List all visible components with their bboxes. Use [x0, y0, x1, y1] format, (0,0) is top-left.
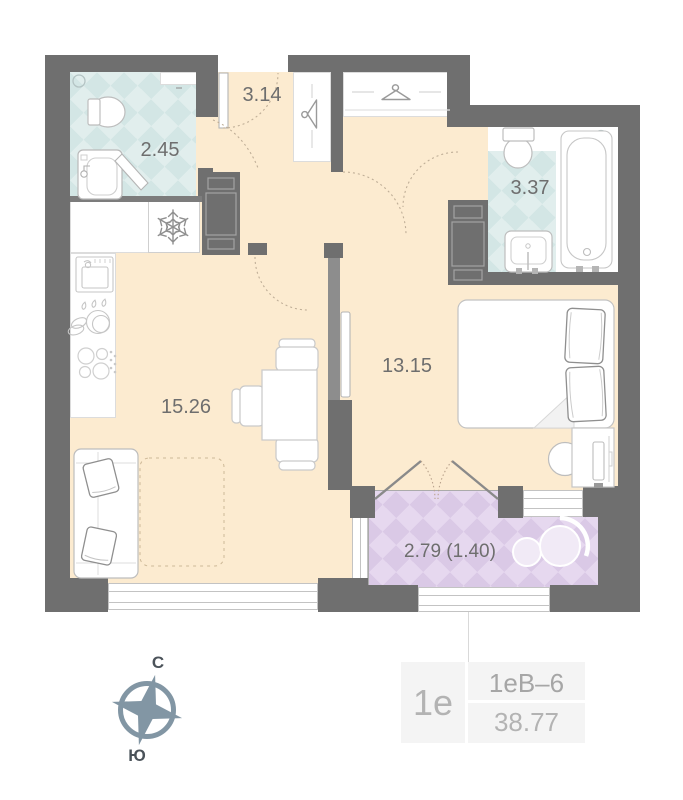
unit-type-cell: 1е	[401, 662, 465, 743]
duct-detail	[206, 178, 484, 280]
toilet-icon	[503, 128, 534, 168]
desk-and-chair	[549, 428, 615, 488]
layout-code-cell: 1еВ–6	[468, 662, 585, 700]
entry-door-leaf	[219, 73, 228, 128]
sink-icon	[505, 231, 552, 274]
stove-icon	[78, 348, 116, 379]
ceiling-light-icon	[73, 75, 85, 87]
washbasin-icon	[78, 150, 122, 199]
total-area-cell: 38.77	[468, 703, 585, 743]
hanger-icon	[302, 100, 317, 128]
rug-outline	[140, 458, 224, 566]
toilet-icon	[88, 97, 125, 127]
room-area-label: 13.15	[372, 355, 442, 378]
room-area-label: 2.79 (1.40)	[380, 541, 520, 563]
room-area-label: 3.14	[232, 84, 292, 107]
dining-set	[232, 339, 318, 470]
dish-dryer-icon	[67, 299, 109, 337]
room-area-label: 2.45	[130, 139, 190, 162]
balcony-table-set	[513, 518, 588, 566]
snowflake-icon	[156, 210, 190, 244]
sofa	[74, 449, 138, 578]
room-area-label: 3.37	[500, 177, 560, 200]
floor-plan: 2.45 3.14 3.37 13.15 15.26 2.79 (1.40) С…	[0, 0, 683, 800]
hanger-icon	[382, 85, 410, 100]
door-swing-arcs	[213, 73, 458, 310]
bed	[458, 300, 614, 428]
room-area-label: 15.26	[151, 396, 221, 419]
bathtub-icon	[561, 131, 612, 272]
compass-north-label: С	[148, 653, 168, 673]
kitchen-sink-icon	[76, 257, 113, 292]
compass-south-label: Ю	[126, 746, 148, 766]
tv-icon	[341, 312, 350, 397]
french-door	[375, 461, 498, 499]
compass-rose	[104, 667, 190, 753]
